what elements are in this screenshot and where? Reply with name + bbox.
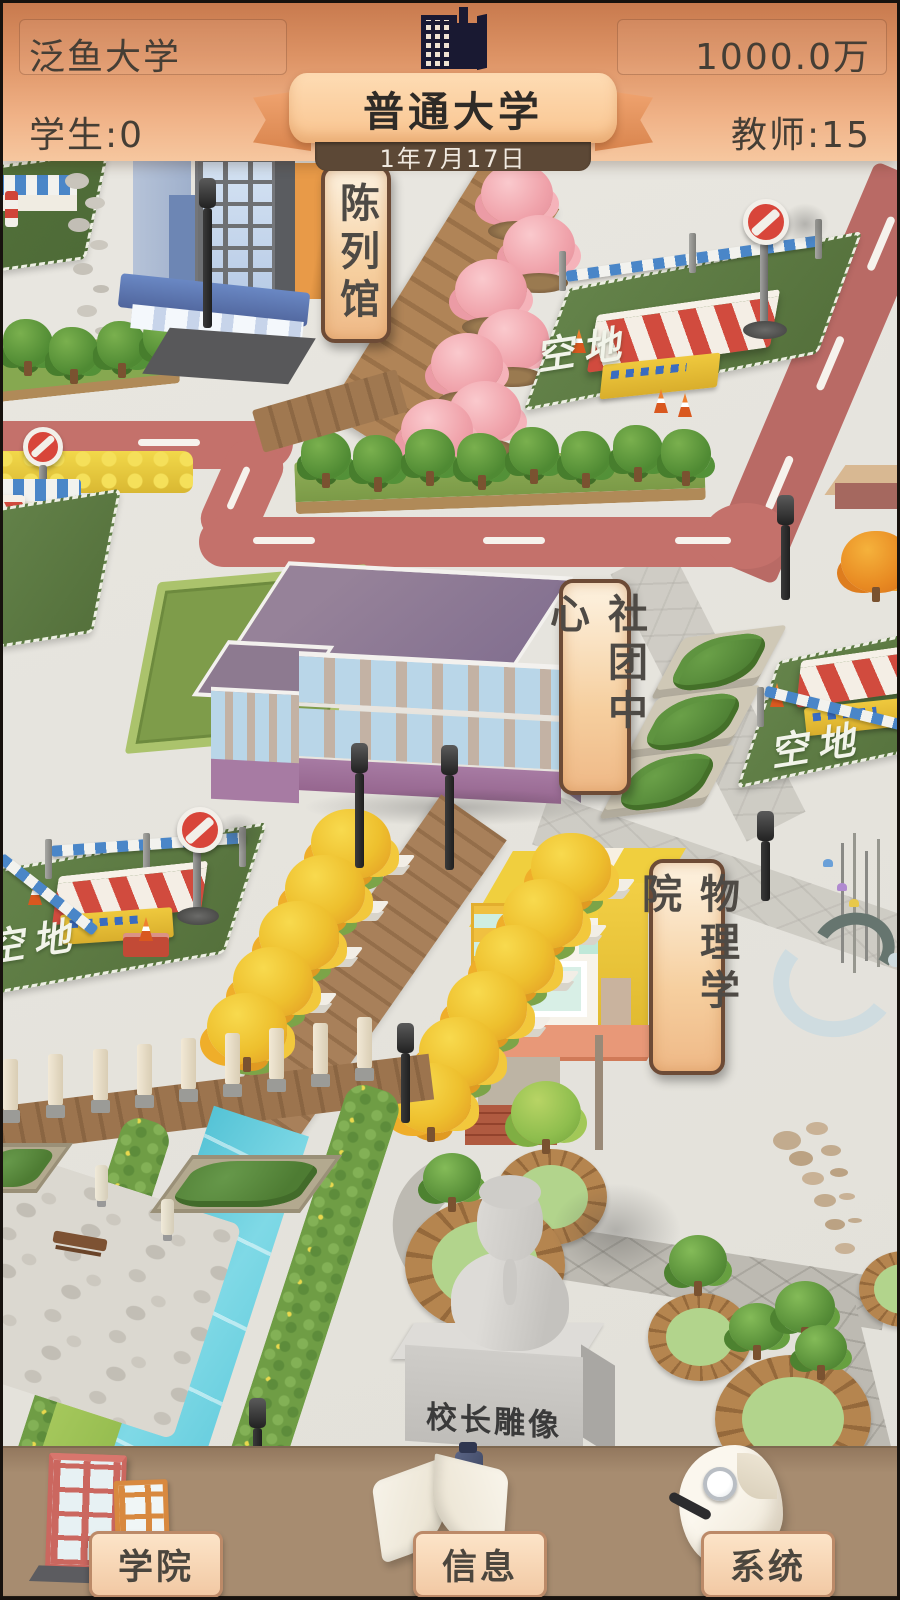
pine-tree-icon xyxy=(561,431,611,479)
planter-grass xyxy=(874,1264,900,1314)
funds-value: 1000.0万 xyxy=(695,28,871,80)
butterfly-icon xyxy=(849,899,859,907)
orange-tree-icon xyxy=(841,531,900,593)
statue-hair xyxy=(479,1175,541,1209)
stone-path xyxy=(65,173,89,189)
road-dash xyxy=(138,439,200,446)
building-wing xyxy=(211,687,299,766)
pier-post xyxy=(137,1044,152,1096)
stepping-stones xyxy=(773,1131,801,1150)
lot-lawn xyxy=(0,489,121,656)
college-button-label[interactable]: 学院 xyxy=(89,1531,223,1598)
road-dash xyxy=(675,537,731,544)
pine-tree-icon xyxy=(457,433,507,481)
campus-map[interactable]: 空地 空地 xyxy=(3,3,897,1597)
street-lamp-icon xyxy=(355,773,364,868)
nav-system-button[interactable]: 系统 xyxy=(643,1448,873,1600)
pier-post xyxy=(357,1017,372,1069)
magnifier-icon xyxy=(703,1467,737,1501)
sign-pole xyxy=(193,849,201,915)
street-lamp-icon xyxy=(203,208,212,328)
label-physics-college[interactable]: 物理学院 xyxy=(649,859,725,1075)
nav-college-button[interactable]: 学院 xyxy=(33,1448,263,1600)
exhibition-building[interactable] xyxy=(113,143,353,383)
no-entry-icon xyxy=(177,807,223,853)
barrier-post xyxy=(689,233,696,273)
no-entry-icon xyxy=(23,427,63,467)
empty-lot[interactable]: 空地 xyxy=(523,193,900,433)
empty-lot[interactable]: 空地 xyxy=(743,623,900,813)
barrier-post xyxy=(45,839,52,879)
icon-chimney xyxy=(459,7,468,27)
pier-post xyxy=(48,1054,63,1106)
university-building-icon xyxy=(413,3,493,69)
no-entry-icon xyxy=(743,199,789,245)
crate xyxy=(835,483,900,509)
pier-post xyxy=(313,1023,328,1075)
bottom-nav-bar: 学院 信息 系统 xyxy=(3,1446,897,1600)
pier-post xyxy=(3,1059,18,1111)
pine-tree-icon xyxy=(49,327,99,375)
game-date: 1年7月17日 xyxy=(315,142,591,171)
barrier-post xyxy=(559,251,566,291)
statue: 校长雕像 xyxy=(393,1163,633,1453)
pine-tree-icon xyxy=(353,435,403,483)
system-button-label[interactable]: 系统 xyxy=(701,1531,835,1598)
tree-icon xyxy=(795,1325,847,1371)
label-club-center[interactable]: 社团中心 xyxy=(559,579,631,795)
street-lamp-icon xyxy=(761,841,770,901)
sign-pole xyxy=(760,243,768,331)
pine-tree-icon xyxy=(509,427,559,475)
icon-tower xyxy=(421,15,457,69)
pine-tree-icon xyxy=(661,429,711,477)
bollard xyxy=(161,1199,174,1235)
game-screen: 空地 空地 xyxy=(0,0,900,1600)
sign-base xyxy=(743,321,787,339)
pier-post xyxy=(93,1049,108,1101)
icon-tower xyxy=(455,23,479,69)
street-lamp-icon xyxy=(401,1053,410,1123)
statue-label: 校长雕像 xyxy=(405,1390,583,1447)
planter-grass xyxy=(666,1308,735,1366)
bollard xyxy=(95,1165,108,1201)
road-dash xyxy=(483,537,545,544)
building-base xyxy=(142,328,316,384)
pier-post xyxy=(181,1038,196,1090)
street-lamp-icon xyxy=(781,525,790,600)
building-side xyxy=(275,155,295,297)
pier-post xyxy=(269,1028,284,1080)
pine-tree-icon xyxy=(405,429,455,477)
sculpture xyxy=(763,833,900,1073)
pine-tree-icon xyxy=(3,319,53,367)
sculpture-arc xyxy=(888,953,900,967)
pedestal-front: 校长雕像 xyxy=(405,1345,583,1453)
statue-tie xyxy=(503,1259,517,1305)
tree-icon xyxy=(511,1081,581,1145)
road-dash xyxy=(253,537,315,544)
butterfly-icon xyxy=(823,859,833,867)
nav-info-button[interactable]: 信息 xyxy=(358,1448,588,1600)
teachers-count: 教师:15 xyxy=(731,106,871,158)
street-lamp-icon xyxy=(445,775,454,870)
building-pole xyxy=(595,1035,603,1150)
flag xyxy=(5,191,18,227)
label-exhibition-hall[interactable]: 陈列馆 xyxy=(321,165,391,343)
pedestal-side xyxy=(581,1344,615,1457)
university-rank-banner[interactable]: 普通大学 xyxy=(289,73,617,143)
building-door xyxy=(601,978,631,1028)
bush-icon xyxy=(166,1161,325,1207)
pier-post xyxy=(225,1033,240,1085)
info-button-label[interactable]: 信息 xyxy=(413,1531,547,1598)
barrier-post xyxy=(757,687,764,727)
school-name: 泛鱼大学 xyxy=(29,28,181,80)
icon-tower xyxy=(477,14,487,70)
sign-base xyxy=(177,907,219,925)
butterfly-icon xyxy=(837,883,847,891)
traffic-cone-icon xyxy=(675,393,695,417)
students-count: 学生:0 xyxy=(29,106,144,158)
